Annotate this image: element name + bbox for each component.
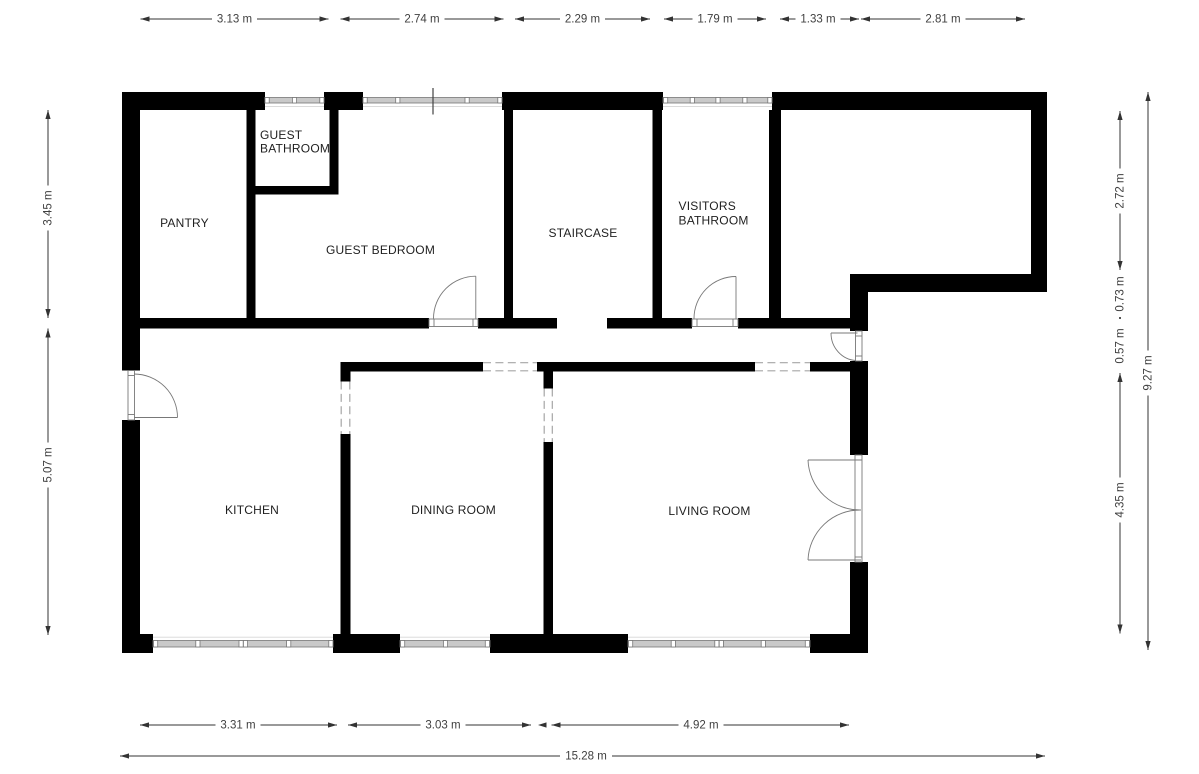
svg-text:3.13 m: 3.13 m (217, 14, 252, 26)
svg-text:PANTRY: PANTRY (160, 216, 209, 230)
svg-text:DINING ROOM: DINING ROOM (411, 503, 496, 517)
svg-text:9.27 m: 9.27 m (1143, 355, 1155, 390)
svg-text:5.07 m: 5.07 m (43, 447, 55, 482)
svg-text:4.92 m: 4.92 m (683, 720, 718, 732)
svg-text:0.57 m: 0.57 m (1115, 328, 1127, 363)
svg-text:LIVING ROOM: LIVING ROOM (668, 504, 750, 518)
svg-text:GUEST: GUEST (260, 128, 303, 142)
svg-text:3.45 m: 3.45 m (43, 190, 55, 225)
svg-text:15.28 m: 15.28 m (565, 751, 607, 763)
svg-text:STAIRCASE: STAIRCASE (549, 226, 618, 240)
svg-text:KITCHEN: KITCHEN (225, 503, 279, 517)
svg-text:BATHROOM: BATHROOM (260, 142, 330, 156)
svg-text:1.33 m: 1.33 m (800, 14, 835, 26)
svg-text:2.29 m: 2.29 m (565, 14, 600, 26)
svg-text:4.35 m: 4.35 m (1115, 482, 1127, 517)
svg-text:2.81 m: 2.81 m (925, 14, 960, 26)
svg-text:GUEST BEDROOM: GUEST BEDROOM (326, 243, 435, 257)
svg-text:1.79 m: 1.79 m (697, 14, 732, 26)
svg-text:BATHROOM: BATHROOM (679, 214, 749, 228)
svg-text:2.74 m: 2.74 m (404, 14, 439, 26)
svg-text:0.73 m: 0.73 m (1115, 276, 1127, 311)
svg-text:3.03 m: 3.03 m (425, 720, 460, 732)
svg-text:VISITORS: VISITORS (679, 199, 736, 213)
svg-text:2.72 m: 2.72 m (1115, 173, 1127, 208)
svg-text:3.31 m: 3.31 m (220, 720, 255, 732)
